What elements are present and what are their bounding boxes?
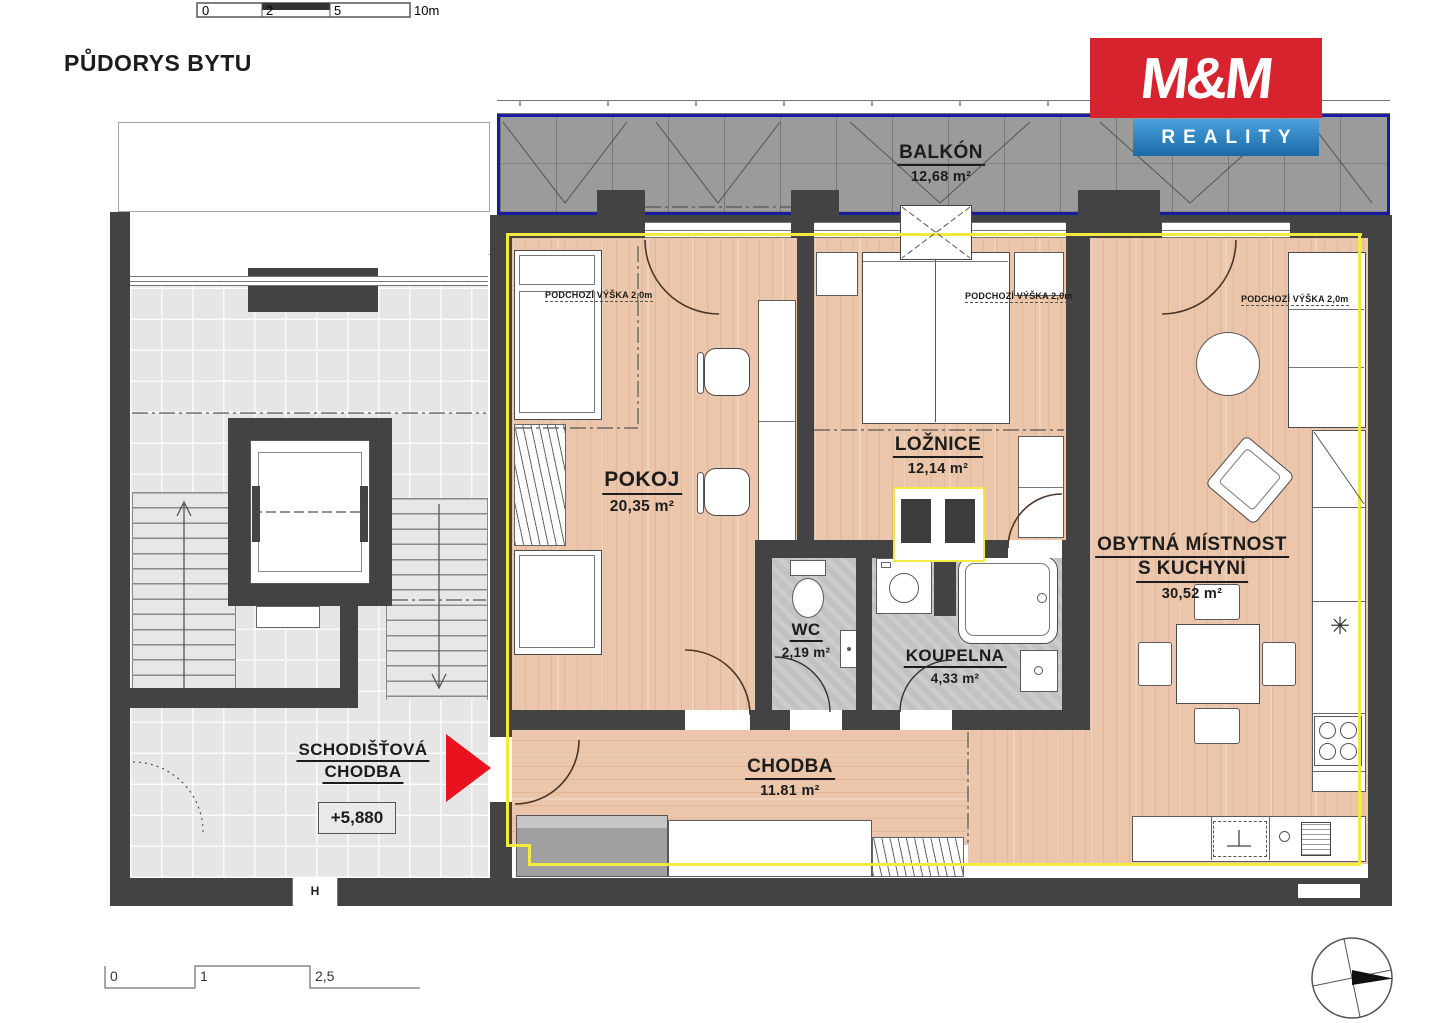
obytna-name-line2: S KUCHYNÍ bbox=[1136, 558, 1248, 582]
boundary-left bbox=[506, 233, 509, 847]
pokoj-desk bbox=[758, 300, 796, 542]
shaft-duct bbox=[945, 499, 975, 543]
chodba-closet bbox=[668, 820, 872, 877]
bottom-scale-bar: 0 1 2,5 bbox=[105, 966, 420, 988]
armchair-seat bbox=[1218, 448, 1281, 511]
sink-drainer bbox=[1301, 822, 1331, 856]
washing-machine bbox=[876, 558, 932, 614]
desk-chair-back bbox=[697, 472, 704, 514]
pokoj-name: POKOJ bbox=[602, 468, 682, 495]
wardrobe-divider bbox=[1019, 487, 1063, 488]
room-label-pokoj: POKOJ 20,35 m² bbox=[602, 468, 682, 516]
scale-fill-segment bbox=[262, 3, 330, 10]
scale-label: 5 bbox=[334, 3, 341, 18]
balcony-wall-stub bbox=[791, 190, 839, 215]
room-label-schodiste: SCHODIŠŤOVÁ CHODBA bbox=[296, 740, 429, 784]
scale-label: 10m bbox=[414, 3, 439, 18]
pokoj-area: 20,35 m² bbox=[602, 498, 682, 516]
chodba-top-wall bbox=[842, 710, 900, 730]
balkon-name: BALKÓN bbox=[897, 142, 985, 166]
living-room-floor-passage bbox=[968, 730, 1090, 864]
pokoj-cabinet bbox=[514, 550, 602, 655]
stair-flight-up bbox=[132, 492, 236, 690]
room-label-balkon: BALKÓN 12,68 m² bbox=[897, 142, 985, 185]
headroom-note: PODCHOZÍ VÝŠKA 2,0m bbox=[545, 290, 653, 302]
chodba-area: 11.81 m² bbox=[745, 783, 835, 799]
balcony-wall-stub bbox=[1078, 190, 1160, 215]
nightstand bbox=[1014, 252, 1064, 296]
obytna-name-line1: OBYTNÁ MÍSTNOST bbox=[1095, 534, 1289, 558]
scale-label: 2 bbox=[266, 3, 273, 18]
desk-chair-back bbox=[697, 352, 704, 394]
elevator-car bbox=[258, 452, 362, 572]
pokoj-radiator bbox=[514, 424, 566, 546]
loznice-area: 12,14 m² bbox=[893, 461, 983, 477]
boundary-step bbox=[506, 844, 531, 847]
chodba-top-wall bbox=[952, 710, 1090, 730]
burner bbox=[1319, 743, 1336, 760]
kitchen-counter bbox=[1132, 816, 1366, 862]
door-mark-h: H bbox=[311, 884, 320, 898]
wc-area: 2,19 m² bbox=[782, 645, 831, 660]
dining-table bbox=[1176, 624, 1260, 704]
scale-label: 1 bbox=[200, 968, 208, 984]
toilet-bowl bbox=[792, 578, 824, 618]
koupelna-living-wall bbox=[1062, 558, 1090, 730]
counter-divider bbox=[1211, 817, 1212, 860]
koupelna-name: KOUPELNA bbox=[904, 646, 1007, 668]
bed-center-line bbox=[935, 253, 936, 422]
headroom-note: PODCHOZÍ VÝŠKA 2,0m bbox=[1241, 294, 1349, 306]
headroom-note: PODCHOZÍ VÝŠKA 2,0m bbox=[965, 291, 1073, 303]
hall-north-window bbox=[130, 276, 488, 286]
burner bbox=[1319, 722, 1336, 739]
room-label-chodba: CHODBA 11.81 m² bbox=[745, 756, 835, 799]
sofa bbox=[1288, 252, 1366, 428]
apartment-right-wall bbox=[1368, 215, 1392, 878]
koupelna-sink bbox=[1020, 650, 1058, 692]
cooktop bbox=[1314, 716, 1362, 766]
chodba-cabinet bbox=[516, 815, 668, 877]
balkon-area: 12,68 m² bbox=[897, 169, 985, 185]
hall-wall-band bbox=[118, 688, 358, 708]
compass-circle bbox=[1312, 938, 1392, 1018]
balcony-wall-stub bbox=[597, 190, 645, 215]
schodiste-name-line2: CHODBA bbox=[322, 762, 403, 784]
loznice-wardrobe bbox=[1018, 436, 1064, 538]
schodiste-name-line1: SCHODIŠŤOVÁ bbox=[296, 740, 429, 762]
bottom-wall-niche bbox=[1298, 884, 1360, 898]
elevator-machine-box bbox=[256, 606, 320, 628]
scale-step-line bbox=[105, 966, 420, 988]
wc-name: WC bbox=[789, 620, 822, 642]
scale-label: 2,5 bbox=[315, 968, 335, 984]
sofa-cushion-line bbox=[1289, 309, 1364, 310]
koupelna-area: 4,33 m² bbox=[904, 671, 1007, 686]
chodba-name: CHODBA bbox=[745, 756, 835, 780]
boundary-right bbox=[1358, 233, 1361, 866]
desk-chair bbox=[704, 468, 750, 516]
shaft-duct bbox=[901, 499, 931, 543]
chodba-top-wall bbox=[512, 710, 685, 730]
scale-label: 0 bbox=[110, 968, 118, 984]
dining-chair bbox=[1138, 642, 1172, 686]
entrance-arrow bbox=[446, 734, 491, 802]
pokoj-bed-mattress bbox=[519, 291, 595, 413]
chodba-wardrobe bbox=[872, 837, 964, 877]
washer-control bbox=[881, 562, 891, 568]
desk-divider bbox=[759, 421, 795, 422]
bathtub bbox=[958, 556, 1058, 644]
chimney-block bbox=[248, 268, 378, 312]
room-label-obytna: OBYTNÁ MÍSTNOST S KUCHYNÍ 30,52 m² bbox=[1095, 534, 1289, 602]
compass-axis bbox=[1344, 939, 1360, 1017]
room-label-loznice: LOŽNICE 12,14 m² bbox=[893, 434, 983, 477]
floor-plan: PŮDORYS BYTU bbox=[0, 0, 1440, 1023]
pokoj-wc-wall bbox=[755, 558, 772, 730]
boundary-bottom bbox=[528, 863, 1361, 866]
sink-drain bbox=[1034, 666, 1043, 675]
dining-chair bbox=[1194, 708, 1240, 744]
hall-landing bbox=[130, 212, 488, 276]
pokoj-loznice-wall bbox=[797, 238, 814, 556]
burner bbox=[1340, 743, 1357, 760]
sink-drain bbox=[847, 647, 851, 651]
boundary-step bbox=[528, 845, 531, 866]
pokoj-cabinet-inner bbox=[519, 555, 595, 648]
cabinet-top-band bbox=[517, 816, 667, 828]
room-label-wc: WC 2,19 m² bbox=[782, 620, 831, 660]
bed-headboard-line bbox=[863, 261, 1008, 262]
burner bbox=[1340, 722, 1357, 739]
roof-outline bbox=[118, 122, 490, 212]
page-title: PŮDORYS BYTU bbox=[64, 50, 252, 77]
bath-duct-block bbox=[934, 556, 956, 616]
boundary-top bbox=[508, 233, 1362, 236]
compass-needle bbox=[1352, 970, 1393, 985]
building-left-wall bbox=[110, 212, 130, 878]
pokoj-bed bbox=[514, 250, 602, 420]
logo-reality-text: REALITY bbox=[1153, 127, 1298, 149]
kitchen-sink-drain bbox=[1279, 831, 1290, 842]
freezer-symbol: ✳ bbox=[1320, 612, 1360, 641]
stair-flight-down bbox=[386, 498, 488, 700]
room-label-koupelna: KOUPELNA 4,33 m² bbox=[904, 646, 1007, 686]
loznice-name: LOŽNICE bbox=[893, 434, 983, 458]
counter-divider bbox=[1269, 817, 1270, 860]
elevator-rail-right bbox=[360, 486, 368, 542]
scale-label: 0 bbox=[202, 3, 209, 18]
desk-chair bbox=[704, 348, 750, 396]
pokoj-bed-pillow bbox=[519, 255, 595, 285]
installation-shaft bbox=[893, 487, 985, 562]
logo-mm-text: M&M bbox=[1138, 45, 1275, 112]
mm-reality-logo: M&M bbox=[1090, 38, 1322, 118]
washer-drum bbox=[889, 573, 919, 603]
sofa-cushion-line bbox=[1289, 367, 1364, 368]
hall-wall-vertical bbox=[340, 606, 358, 708]
wc-koupelna-wall bbox=[856, 558, 872, 730]
obytna-area: 30,52 m² bbox=[1095, 586, 1289, 602]
nightstand bbox=[816, 252, 858, 296]
compass-axis bbox=[1313, 970, 1391, 986]
compass bbox=[1312, 938, 1393, 1018]
dining-chair bbox=[1262, 642, 1296, 686]
round-table bbox=[1196, 332, 1260, 396]
chodba-top-wall bbox=[750, 710, 790, 730]
loznice-door-opening bbox=[1008, 540, 1062, 558]
dishwasher bbox=[1213, 821, 1267, 857]
loznice-living-wall bbox=[1066, 238, 1090, 556]
double-bed bbox=[862, 252, 1010, 424]
elevator-rail-left bbox=[252, 486, 260, 542]
toilet-tank bbox=[790, 560, 826, 576]
mm-reality-banner: REALITY bbox=[1133, 119, 1319, 156]
top-scale-bar: 0 2 5 10m bbox=[197, 3, 439, 18]
scale-outline bbox=[197, 3, 410, 17]
bathtub-drain bbox=[1037, 593, 1047, 603]
level-mark: +5,880 bbox=[318, 802, 396, 834]
